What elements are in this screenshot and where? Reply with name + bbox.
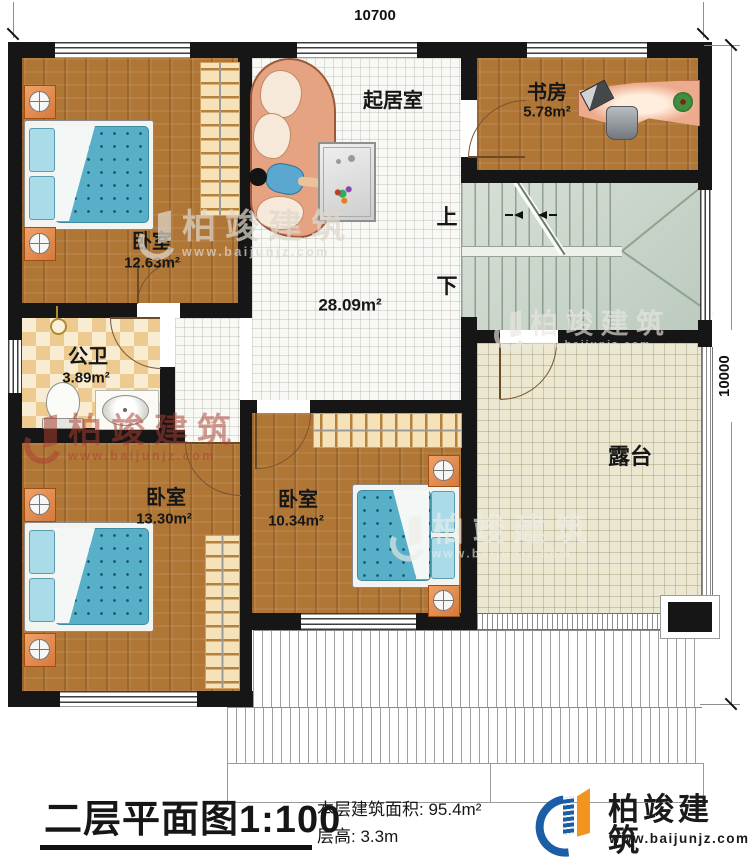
bedroom1-pillow-1 (29, 128, 55, 172)
window-bedroom1-top (55, 42, 190, 58)
stairs-lower-flight (461, 255, 622, 330)
wall-central-c (461, 317, 477, 630)
wall-study-stairs (461, 170, 712, 183)
wall-bedroom3-top-b (310, 400, 461, 413)
bedroom1-area: 12.63m² (124, 256, 180, 271)
lamp-icon (433, 590, 454, 611)
dimension-right: 10000 (716, 330, 742, 422)
window-bathroom-left (8, 340, 22, 393)
bedroom1-wardrobe (200, 62, 240, 216)
bedroom1-bed (24, 120, 154, 230)
stairs-edge-line (461, 183, 462, 330)
bedroom2-nightstand-1 (24, 488, 56, 522)
bedroom1-pillow-2 (29, 176, 55, 220)
wall-right-corner (698, 320, 712, 347)
study-chair (606, 106, 638, 140)
bedroom3-pillow-2 (431, 537, 455, 579)
page-title: 二层平面图1:100 (44, 801, 341, 839)
bedroom3-pillow-1 (431, 491, 455, 533)
roof-hatch-lower (227, 707, 702, 764)
wall-right-upper (698, 42, 712, 190)
wall-bedroom1-bath-a (8, 303, 137, 318)
terrace-door-leaf (499, 343, 501, 399)
terrace-right-railing (701, 347, 713, 613)
stairs-direction-arrow (514, 211, 523, 219)
bedroom3-area: 10.34m² (268, 514, 324, 529)
study-door-leaf (468, 156, 525, 158)
brand-logo-icon (536, 788, 598, 848)
lamp-icon (29, 233, 50, 254)
bedroom1-label: 卧室 (132, 232, 172, 252)
lamp-icon (29, 91, 50, 112)
table-dot-2 (348, 155, 355, 162)
stairs-down-label: 下 (437, 270, 458, 300)
bedroom2-nightstand-2 (24, 633, 56, 667)
floor-area-line: 本层建筑面积: 95.4m² (317, 801, 481, 818)
brand-building-icon (563, 796, 574, 835)
bathroom-area: 3.89m² (62, 371, 110, 386)
bedroom2-wardrobe (205, 535, 240, 689)
table-dot-1 (336, 159, 341, 164)
window-bedroom3-bottom (301, 613, 416, 630)
wall-bathroom-bottom (8, 428, 175, 443)
stairs-up-label: 上 (437, 201, 458, 231)
wall-bedroom1-bath-b (180, 303, 252, 318)
terrace-label: 露台 (608, 446, 652, 468)
hallway-floor (175, 318, 240, 443)
bathroom-ceiling-lamp (50, 318, 67, 335)
roof-hatch-upper (253, 630, 702, 708)
bedroom3-door-leaf (255, 413, 257, 469)
living-label: 起居室 (363, 91, 423, 111)
bedroom2-pillow-2 (29, 578, 55, 622)
title-underline (40, 845, 312, 850)
wall-hall-piece (175, 430, 185, 443)
window-stairs-right (700, 190, 712, 320)
person-head (249, 168, 267, 186)
bedroom3-wardrobe (313, 413, 462, 448)
bedroom3-nightstand-1 (428, 455, 460, 487)
title-text: 二层平面图 (44, 799, 239, 841)
brand-tower-icon (577, 788, 590, 837)
wall-bedroom3-top-a (240, 400, 257, 413)
sofa-cushion-1 (260, 70, 302, 118)
wall-stairs-terrace-a (461, 330, 500, 343)
lamp-icon (29, 639, 50, 660)
stairs-direction-dash (505, 214, 513, 216)
wall-stairs-terrace-b (558, 330, 712, 343)
living-area: 28.09m² (318, 297, 381, 314)
bedroom2-pillow-1 (29, 530, 55, 574)
table-flowers (330, 182, 356, 208)
brand-logo: 柏竣建筑 www.baijunjz.com (536, 788, 746, 852)
stairs-direction-arrow2 (538, 211, 547, 219)
stairs-handrail (461, 246, 622, 257)
lamp-icon (433, 460, 454, 481)
wall-bedroom2-3 (240, 400, 252, 691)
roof-outline-left (227, 763, 492, 803)
sofa-cushion-3 (256, 196, 304, 230)
bedroom2-area: 13.30m² (136, 512, 192, 527)
dimension-top: 10700 (330, 7, 420, 24)
bedroom2-label: 卧室 (146, 488, 186, 508)
bedroom1-nightstand-2 (24, 227, 56, 261)
window-study-top (527, 42, 647, 58)
bedroom2-door-leaf (185, 442, 240, 444)
bathroom-door-leaf (110, 317, 160, 319)
bedroom1-nightstand-1 (24, 85, 56, 119)
lamp-icon (29, 494, 50, 515)
coffee-table (318, 142, 376, 222)
wall-central-a (461, 42, 477, 100)
study-label: 书房 (527, 83, 567, 103)
floor-height-line: 层高: 3.3m (317, 828, 398, 845)
window-bedroom2-bottom (60, 691, 197, 707)
sink-drain (123, 408, 127, 412)
toilet-tank (42, 418, 84, 429)
toilet-icon (46, 382, 80, 422)
study-area: 5.78m² (523, 105, 571, 120)
terrace-column (668, 602, 712, 632)
brand-name: 柏竣建筑 (608, 794, 746, 856)
stairs-direction-dash2 (549, 214, 557, 216)
bedroom2-bed (24, 522, 154, 632)
bedroom3-nightstand-2 (428, 585, 460, 617)
dim-ext-right-top (704, 45, 740, 46)
floor-plan: 卧室 12.63m² 起居室 28.09m² 书房 5.78m² 公卫 3.89… (0, 0, 750, 858)
bedroom3-bed (352, 484, 460, 588)
bathroom-label: 公卫 (68, 347, 108, 367)
window-living-top (297, 42, 417, 58)
plant-icon (673, 92, 693, 112)
bedroom3-label: 卧室 (278, 490, 318, 510)
brand-url: www.baijunjz.com (609, 831, 750, 846)
sofa-cushion-2 (253, 113, 291, 159)
